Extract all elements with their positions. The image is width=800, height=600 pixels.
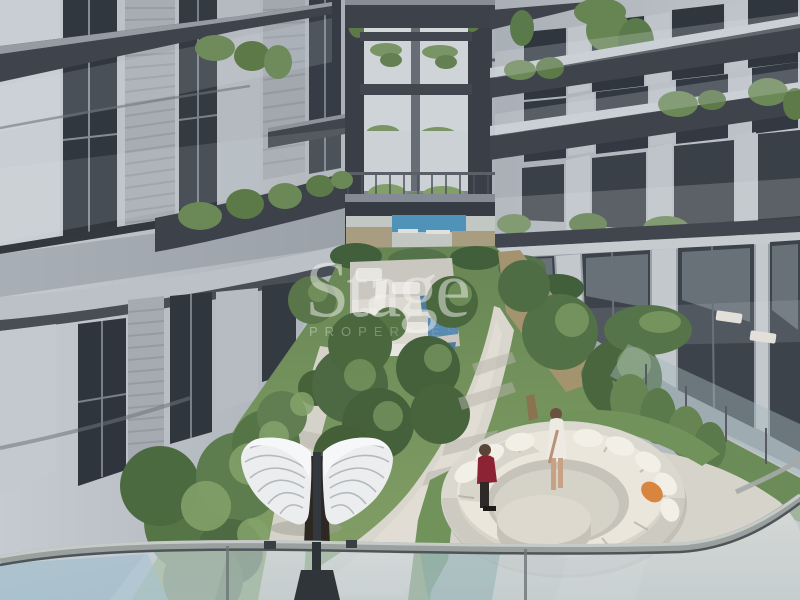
svg-text:Stage: Stage: [305, 246, 468, 334]
svg-text:PROPERTIES: PROPERTIES: [309, 324, 463, 339]
